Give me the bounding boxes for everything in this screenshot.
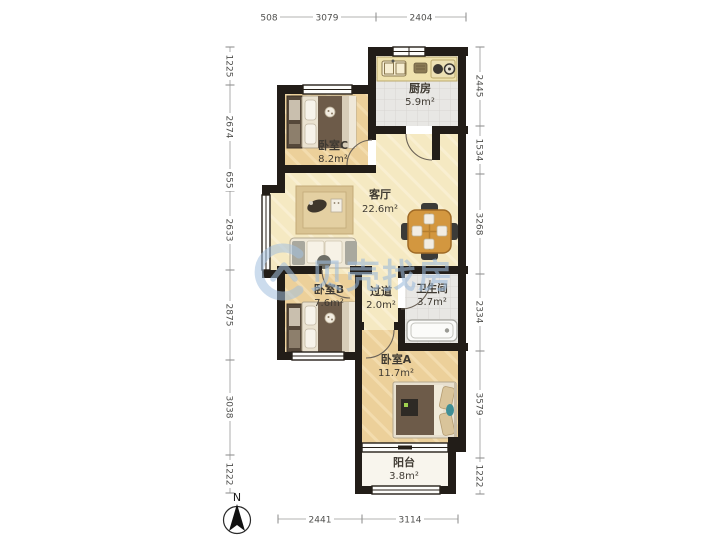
dim-right-3: 2334	[474, 301, 484, 324]
dimensions-bottom: 2441 3114	[278, 514, 458, 526]
compass-label: N	[233, 491, 241, 504]
bathtub	[407, 320, 457, 341]
floorplan-page: 卧室C 8.2m² 厨房 5.9m² 客厅 22.6m² 卧室B 7.6m² 过…	[0, 0, 720, 540]
bedroom-a-bed	[393, 382, 457, 438]
area-balcony: 3.8m²	[389, 471, 419, 482]
dim-top-0: 508	[260, 14, 277, 24]
area-bedroom-c: 8.2m²	[318, 154, 348, 165]
sliding-door-balcony	[362, 443, 448, 452]
dim-right-4: 3579	[474, 393, 484, 416]
dim-left-5: 3038	[224, 396, 234, 419]
dimensions-top: 508 3079 2404	[258, 12, 466, 24]
area-kitchen: 5.9m²	[405, 97, 435, 108]
window-kitchen	[393, 47, 425, 56]
area-bathroom: 3.7m²	[417, 297, 447, 308]
area-hallway: 2.0m²	[366, 300, 396, 311]
window-balcony	[372, 486, 440, 494]
dim-right-1: 1534	[474, 139, 484, 162]
dim-bottom-0: 2441	[309, 516, 332, 526]
dimensions-right: 2445 1534 3268 2334 3579 1222	[474, 47, 486, 494]
dim-left-1: 2674	[224, 116, 234, 139]
compass: N	[224, 491, 251, 534]
dim-top-2: 2404	[410, 14, 433, 24]
floor-living-east	[376, 134, 458, 173]
window-bedroom-c	[303, 85, 352, 94]
area-bedroom-b: 7.6m²	[314, 298, 344, 309]
dim-right-0: 2445	[474, 75, 484, 98]
dim-right-5: 1222	[474, 465, 484, 488]
dim-right-2: 3268	[474, 213, 484, 236]
dimensions-left: 1225 2674 655 2633 2875 3038 1222	[224, 47, 236, 493]
area-living: 22.6m²	[362, 204, 398, 215]
bedroom-b-bed	[287, 302, 356, 352]
floor-living-bay	[270, 191, 277, 278]
area-bedroom-a: 11.7m²	[378, 368, 414, 379]
dim-left-4: 2875	[224, 304, 234, 327]
dim-left-0: 1225	[224, 55, 234, 78]
label-bedroom-c: 卧室C	[318, 138, 348, 152]
label-bedroom-a: 卧室A	[381, 352, 412, 366]
dim-left-6: 1222	[224, 463, 234, 486]
kitchen-counter	[377, 57, 457, 81]
watermark-text: 贝壳找房	[310, 257, 454, 297]
dim-left-2: 655	[224, 171, 234, 188]
dim-left-3: 2633	[224, 219, 234, 242]
label-kitchen: 厨房	[409, 81, 431, 95]
window-bedroom-b	[292, 352, 344, 360]
label-living: 客厅	[368, 187, 391, 201]
dim-bottom-1: 3114	[399, 516, 422, 526]
dim-top-1: 3079	[316, 14, 339, 24]
label-balcony: 阳台	[393, 455, 415, 469]
floorplan-canvas: 卧室C 8.2m² 厨房 5.9m² 客厅 22.6m² 卧室B 7.6m² 过…	[0, 0, 720, 540]
